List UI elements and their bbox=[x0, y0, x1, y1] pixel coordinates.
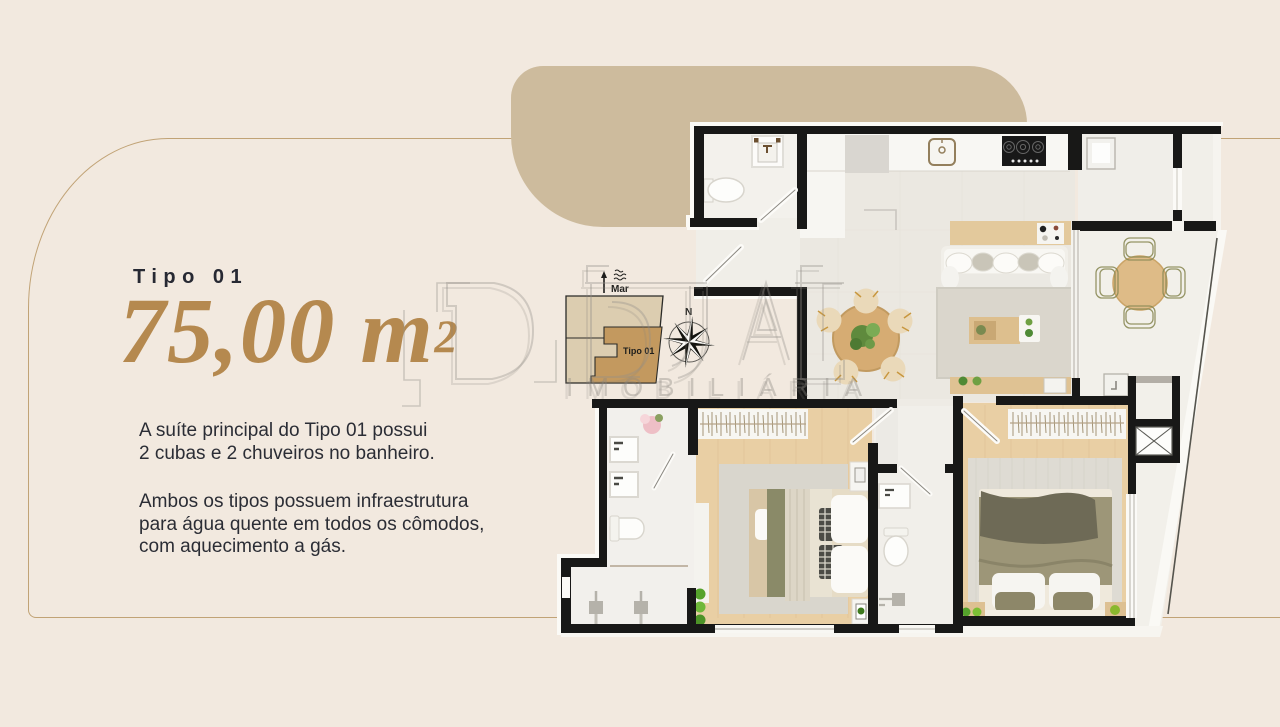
svg-text:IMOBILIÁRIA: IMOBILIÁRIA bbox=[566, 372, 876, 402]
svg-text:Mar: Mar bbox=[611, 284, 629, 295]
